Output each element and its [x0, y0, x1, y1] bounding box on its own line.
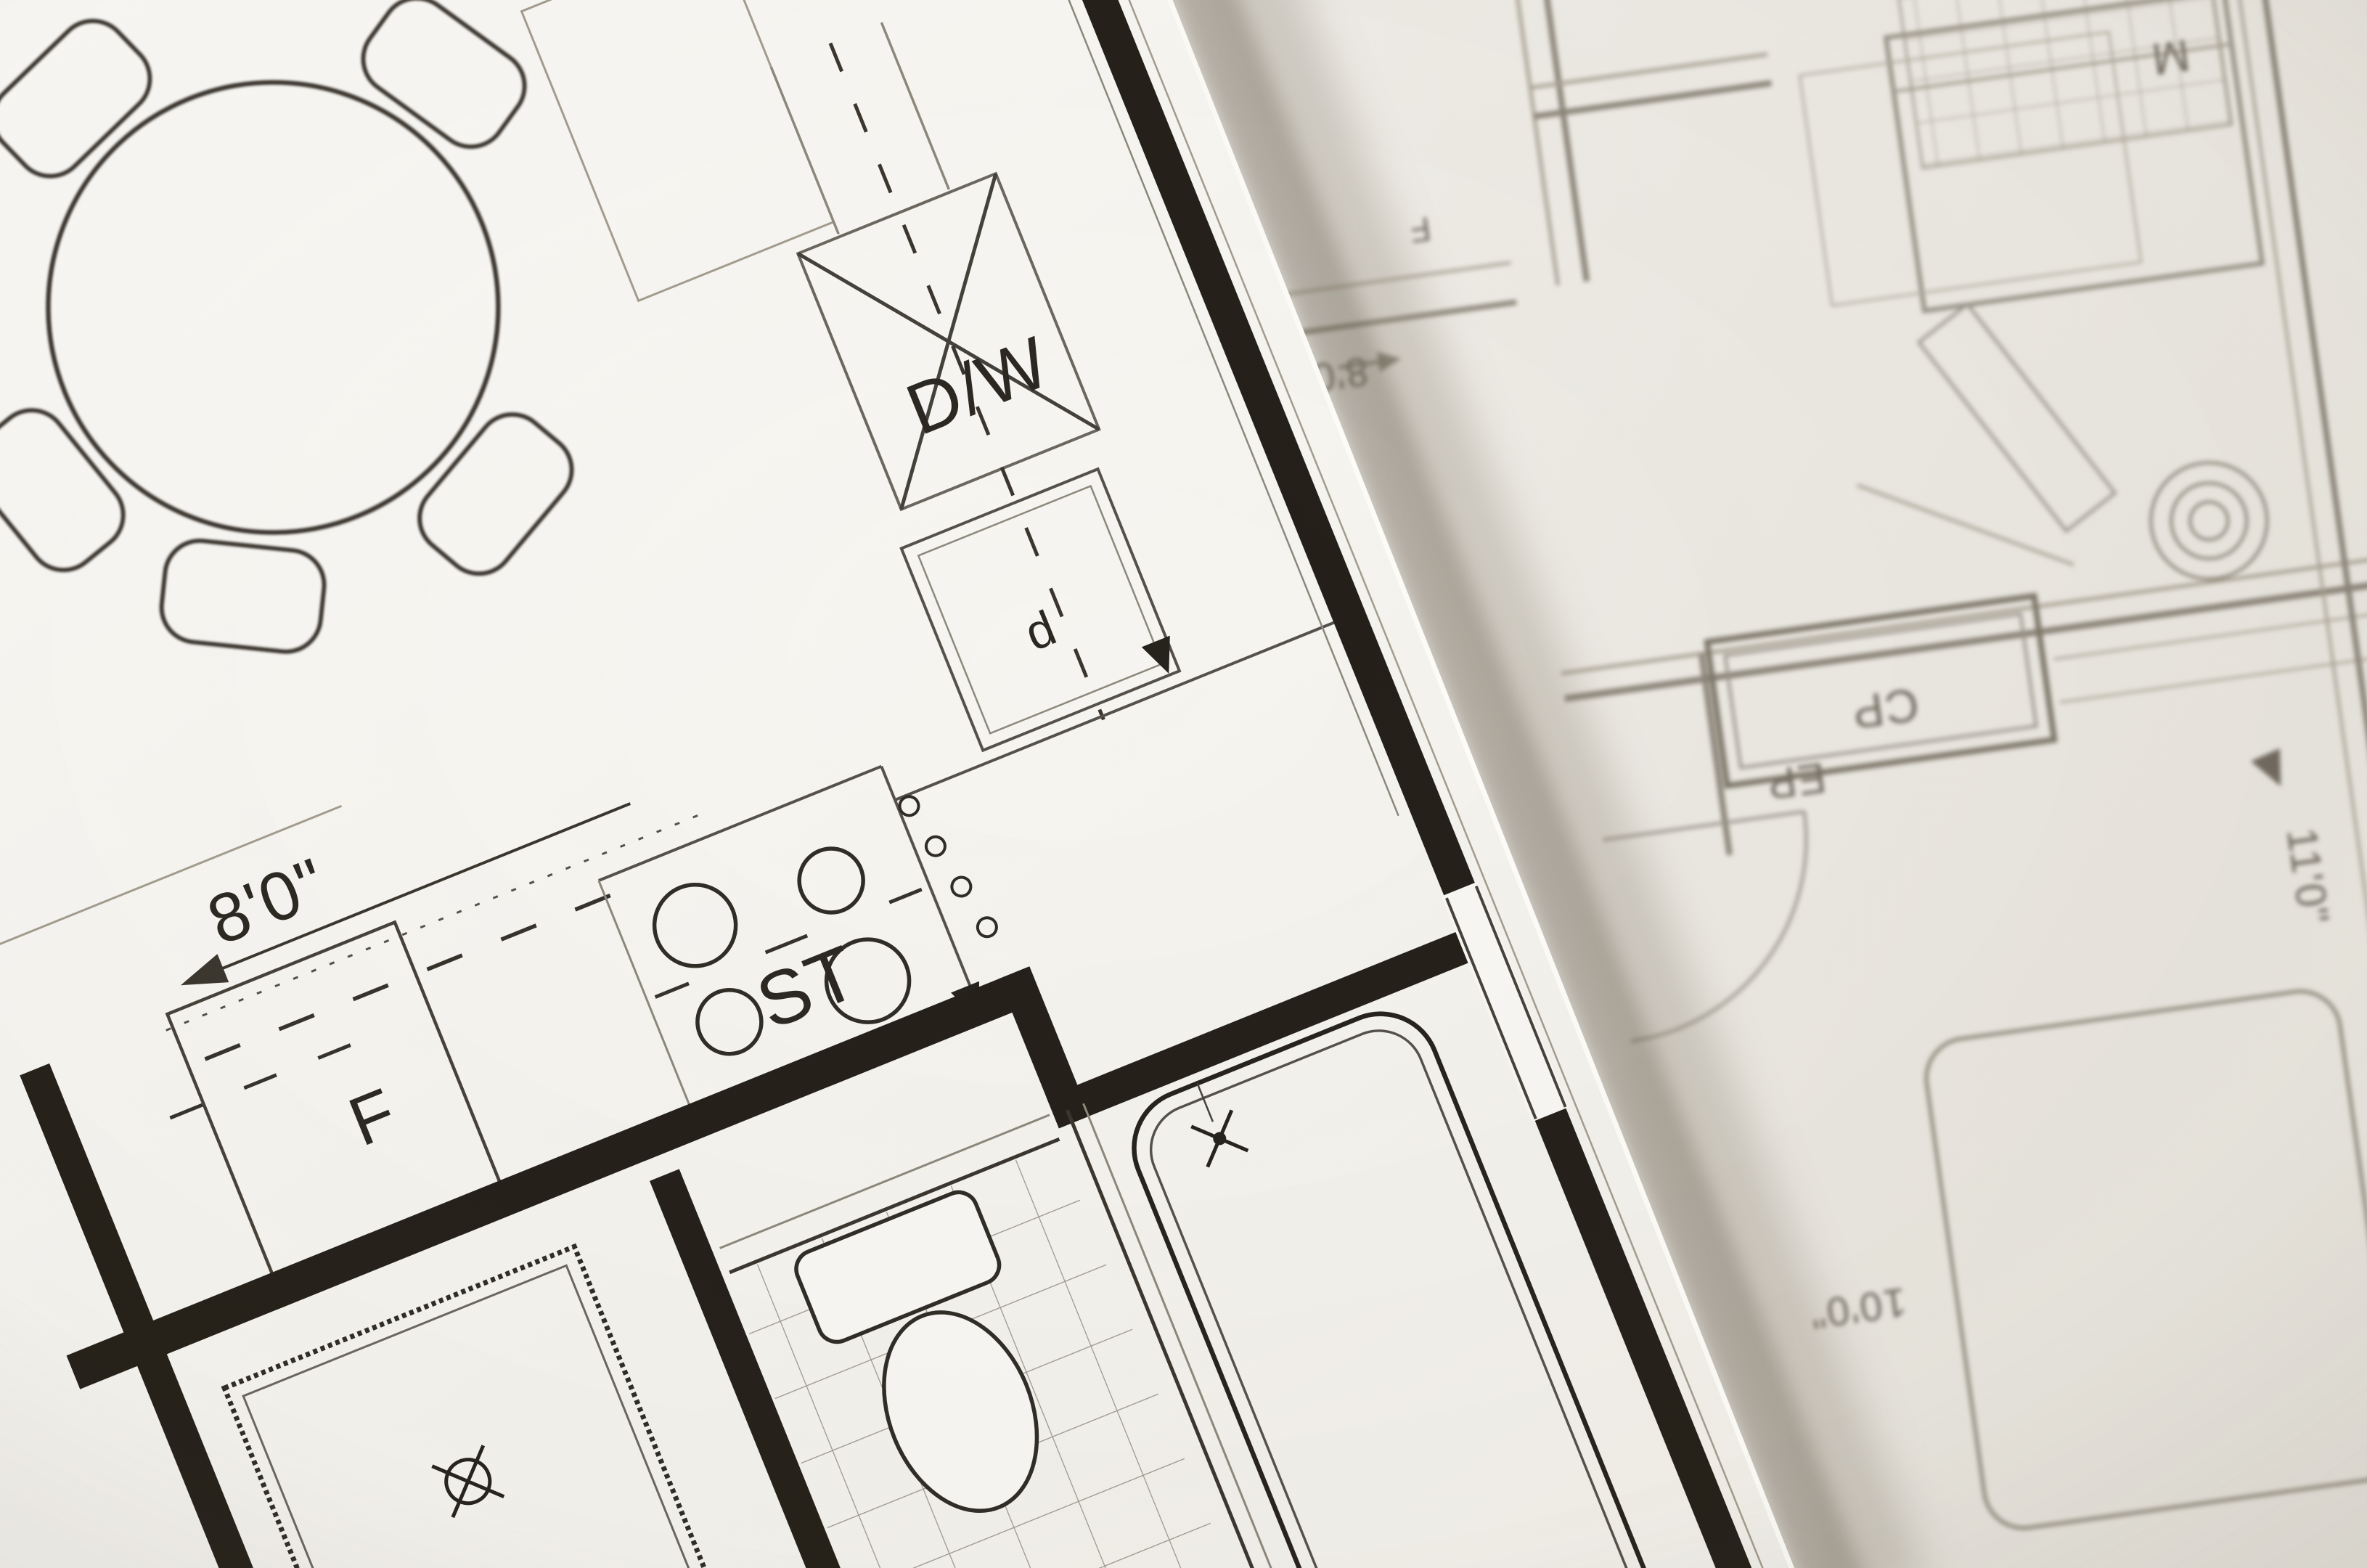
blueprint-photo: CP EP 11'0" M F 8'0": [0, 0, 2367, 1568]
photo-vignette: [0, 0, 2367, 1568]
